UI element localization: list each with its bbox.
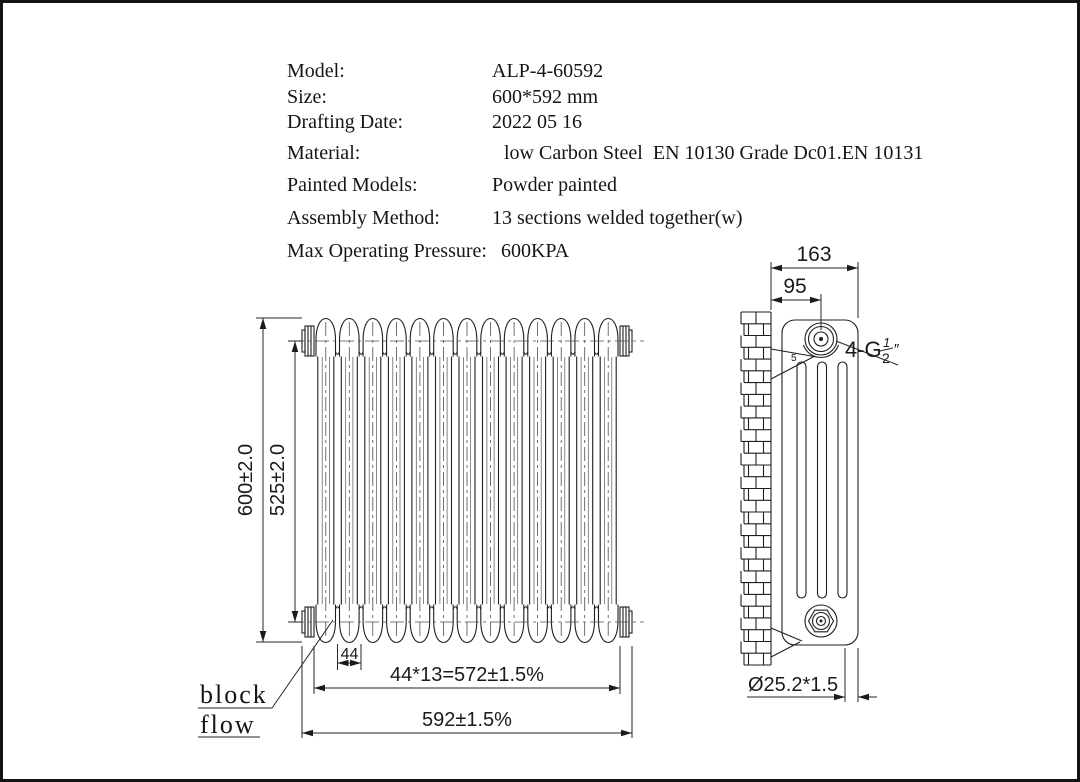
weld-mark: 5 (791, 353, 797, 364)
block-flow-callout: block flow (198, 620, 333, 739)
wall-brackets (771, 349, 817, 657)
dim-port-offset: 95 (771, 275, 821, 330)
dim-section-width: 44 (338, 644, 362, 670)
bottom-port (805, 605, 837, 637)
radiator-sections (316, 319, 618, 643)
thread-unit: ″ (894, 341, 900, 358)
dim-pipe: Ø25.2*1.5 (747, 648, 877, 702)
dim-text-592: 592±1.5% (422, 709, 512, 731)
dim-text-44: 44 (341, 646, 359, 663)
dim-text-95: 95 (783, 275, 806, 298)
wall-bricks (741, 312, 771, 665)
technical-drawing: 600±2.0 525±2.0 44 44*13=572±1.5 (0, 0, 1080, 782)
column-slot (838, 362, 847, 598)
dim-sections-total: 44*13=572±1.5% (314, 646, 620, 694)
dim-text-pipe: Ø25.2*1.5 (748, 674, 838, 696)
block-flow-line1: block (200, 680, 268, 709)
front-view: 600±2.0 525±2.0 44 44*13=572±1.5 (198, 318, 644, 739)
thread-frac-num: 1 (883, 335, 890, 350)
dim-text-163: 163 (796, 243, 831, 266)
drawing-sheet: Model:ALP-4-60592 Size:600*592 mm Drafti… (0, 0, 1080, 782)
column-slot (797, 362, 806, 598)
side-view: 5 163 95 4-G 1 2 ″ (741, 243, 900, 702)
dim-text-600: 600±2.0 (235, 444, 257, 516)
dim-height-centers: 525±2.0 (267, 341, 302, 622)
thread-frac-den: 2 (882, 350, 890, 366)
thread-text: 4-G (845, 337, 882, 362)
dim-text-525: 525±2.0 (267, 444, 289, 516)
column-slot (818, 362, 827, 598)
thread-callout: 4-G 1 2 ″ (836, 335, 900, 366)
dim-text-572: 44*13=572±1.5% (390, 664, 544, 686)
block-flow-line2: flow (200, 710, 256, 739)
